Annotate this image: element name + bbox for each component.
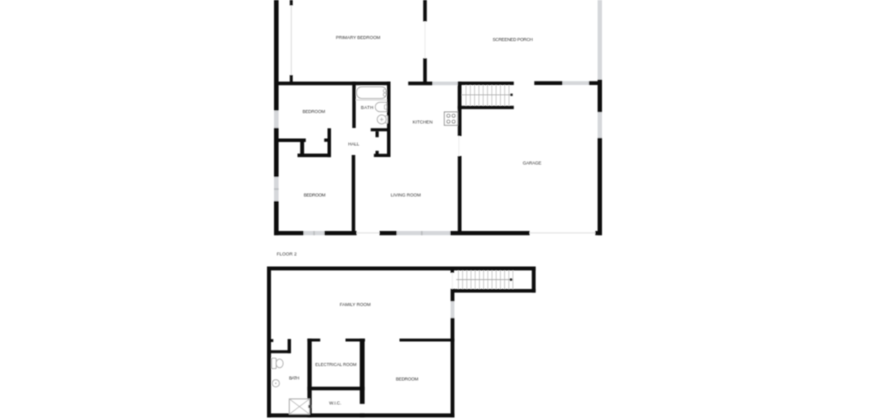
svg-text:W.I.C.: W.I.C. [329,400,341,405]
svg-text:KITCHEN: KITCHEN [413,120,433,125]
svg-text:BEDROOM: BEDROOM [303,109,326,114]
svg-text:BATH: BATH [361,105,374,110]
svg-text:FLOOR 2: FLOOR 2 [277,251,297,256]
svg-text:PRIMARY BEDROOM: PRIMARY BEDROOM [336,35,381,40]
svg-text:SCREENED PORCH: SCREENED PORCH [493,37,533,42]
svg-text:BEDROOM: BEDROOM [396,377,419,382]
svg-text:BEDROOM: BEDROOM [304,193,326,198]
svg-text:ELECTRICAL ROOM: ELECTRICAL ROOM [315,362,357,367]
svg-text:FAMILY ROOM: FAMILY ROOM [340,302,371,307]
svg-text:LIVING ROOM: LIVING ROOM [391,193,421,198]
svg-text:GARAGE: GARAGE [523,161,542,166]
svg-text:HALL: HALL [348,142,360,147]
svg-text:BATH: BATH [289,376,299,381]
